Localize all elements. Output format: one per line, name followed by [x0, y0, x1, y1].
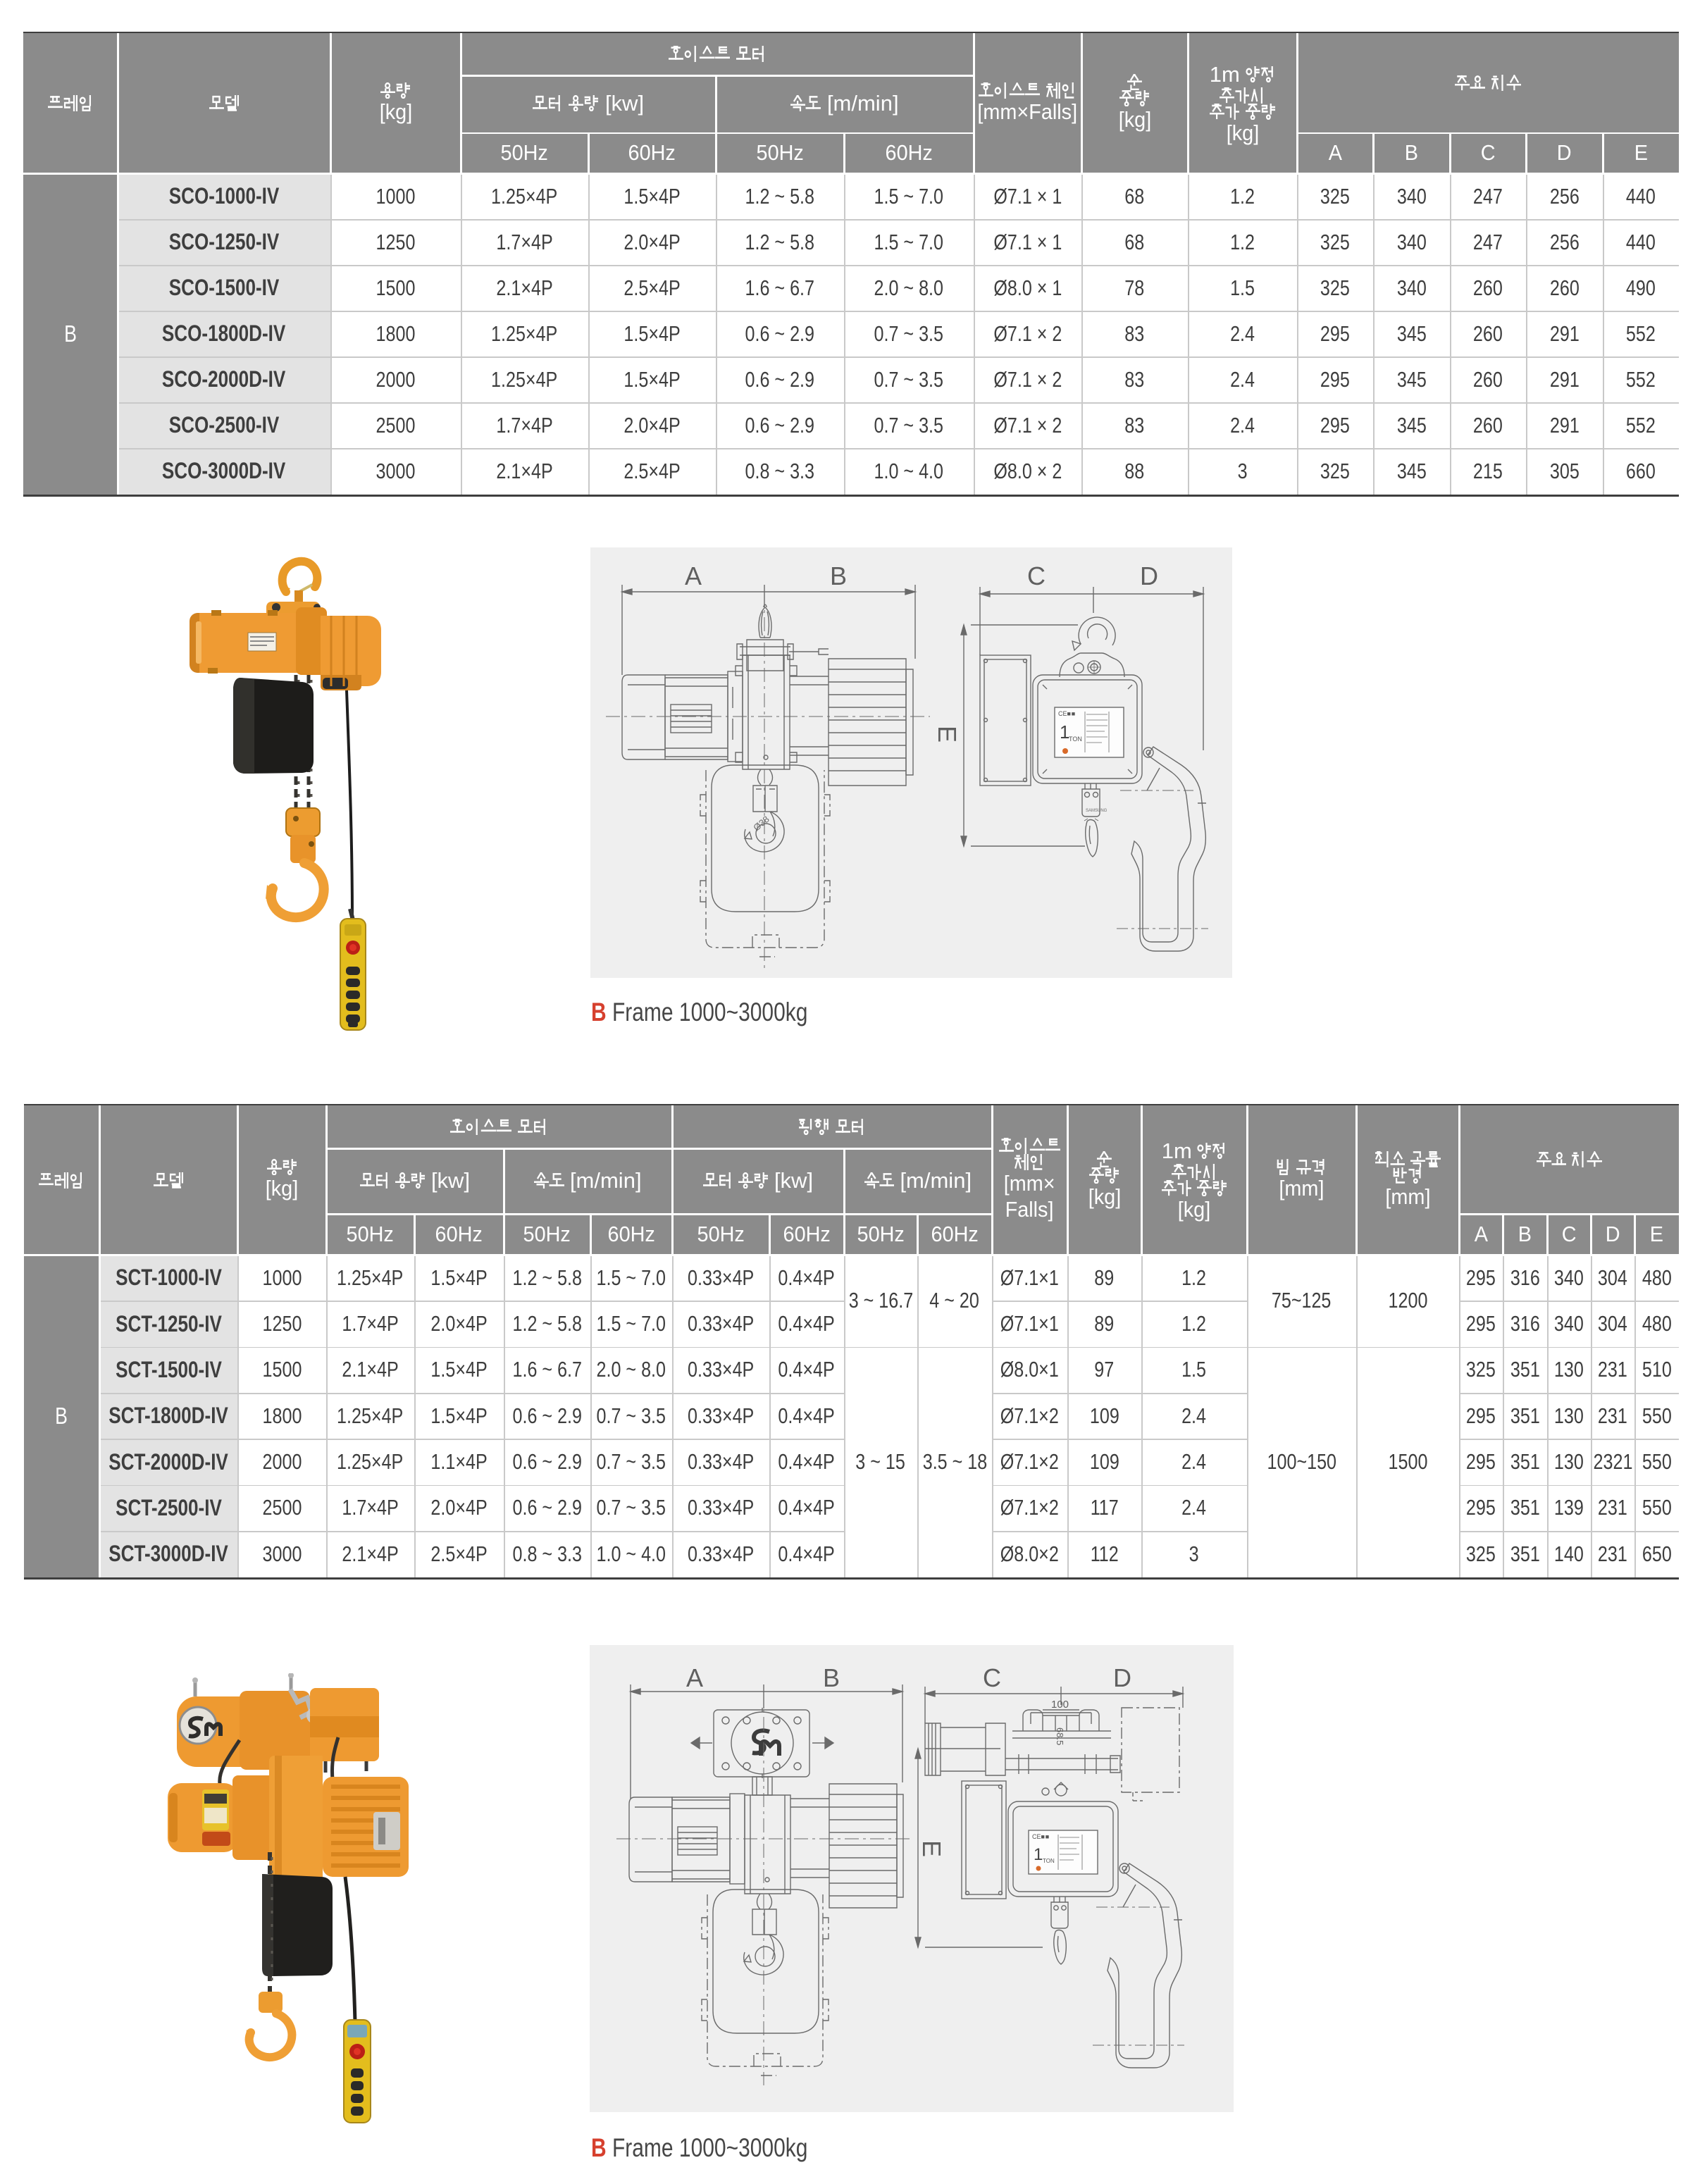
svg-text:100: 100: [1051, 1699, 1069, 1711]
svg-text:SAMSUNG: SAMSUNG: [1086, 809, 1108, 813]
svg-text:TON: TON: [1069, 736, 1082, 743]
svg-text:68.5: 68.5: [1055, 1727, 1065, 1745]
svg-text:D: D: [1113, 1663, 1131, 1692]
svg-text:TON: TON: [1043, 1858, 1055, 1864]
svg-text:A: A: [685, 561, 702, 590]
svg-text:CE■ ■: CE■ ■: [1058, 710, 1075, 717]
svg-text:CE■ ■: CE■ ■: [1032, 1833, 1049, 1840]
svg-text:B: B: [830, 561, 847, 590]
svg-text:1: 1: [1034, 1845, 1043, 1864]
svg-text:E: E: [933, 726, 962, 743]
svg-text:A: A: [686, 1663, 703, 1692]
svg-text:C: C: [1027, 561, 1046, 590]
svg-text:B: B: [823, 1663, 840, 1692]
svg-text:C: C: [983, 1663, 1001, 1692]
svg-text:D: D: [1140, 561, 1158, 590]
svg-text:E: E: [917, 1840, 946, 1857]
